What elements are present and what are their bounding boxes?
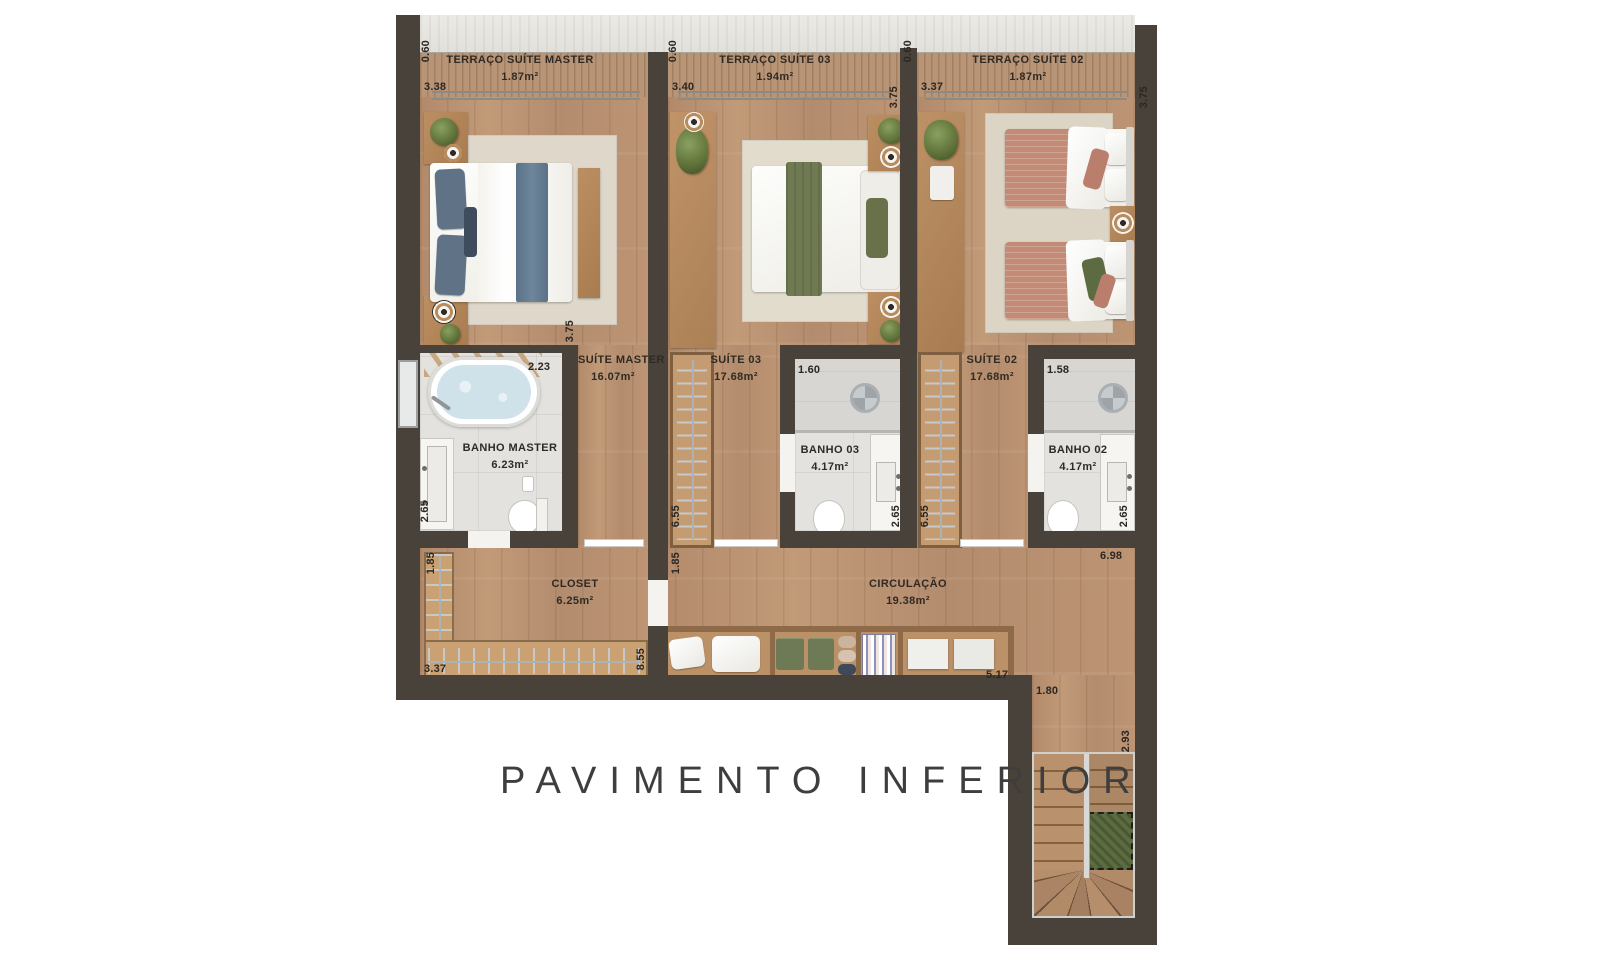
wall-closet-divider-top <box>648 548 668 580</box>
sliding-door-suite-master <box>432 91 640 100</box>
storage-box <box>954 639 994 669</box>
plant-pot <box>880 320 902 342</box>
wall-stair-wing-bottom <box>1008 918 1157 945</box>
folded-blanket-green <box>776 638 804 670</box>
decor-vase <box>930 166 954 200</box>
single-bed-2 <box>1005 242 1134 319</box>
bed-pillow-blue <box>434 234 467 295</box>
wall-divider-master-03 <box>648 52 668 345</box>
room-name: CIRCULAÇÃO <box>858 576 958 593</box>
decor-speaker <box>432 300 456 324</box>
room-area: 1.94m² <box>695 69 855 86</box>
shelf-divider <box>770 632 775 676</box>
stored-pillow <box>668 636 706 670</box>
plant-pot <box>676 128 708 174</box>
dim-stair-opening: 1.80 <box>1036 686 1058 697</box>
roof-ledge-band <box>420 15 1135 52</box>
storage-pouch-navy <box>838 664 856 675</box>
door-leaf-suite-02 <box>960 539 1024 547</box>
room-label-banho-03: BANHO 03 4.17m² <box>798 442 862 476</box>
room-area: 4.17m² <box>1046 459 1110 476</box>
room-name: SUÍTE MASTER <box>578 352 648 369</box>
door-leaf-suite-master <box>584 539 644 547</box>
double-bed-suite-03 <box>752 166 902 292</box>
paper-roll <box>522 476 534 492</box>
door-gap-closet-circulation <box>648 580 668 626</box>
dim-suite-master-corridor: 3.75 <box>565 320 576 342</box>
dim-suite-03-right: 3.75 <box>889 86 900 108</box>
sliding-door-suite-02 <box>925 91 1127 100</box>
bed-headboard <box>1126 240 1134 321</box>
bed-runner-blue <box>516 163 548 302</box>
shelf-divider <box>856 632 861 676</box>
room-label-suite-02: SUÍTE 02 17.68m² <box>956 352 1028 386</box>
plant-pot <box>440 324 460 344</box>
floor-title: PAVIMENTO INFERIOR <box>500 760 1144 803</box>
room-area: 17.68m² <box>956 369 1028 386</box>
shelf-divider <box>898 632 903 676</box>
bed-pillow-blue <box>434 168 467 229</box>
decor-tray <box>444 144 462 162</box>
faucet-dot <box>1127 474 1132 479</box>
floor-plan-canvas: TERRAÇO SUÍTE MASTER 1.87m² TERRAÇO SUÍT… <box>0 0 1600 960</box>
bathtub-water <box>437 365 531 419</box>
wall-right-outer <box>1135 25 1157 945</box>
faucet-dot <box>422 466 427 471</box>
bed-cushion-navy <box>464 207 477 257</box>
storage-box <box>908 639 948 669</box>
room-name: SUÍTE 03 <box>700 352 772 369</box>
bed-headboard <box>1126 127 1134 209</box>
room-area: 1.87m² <box>948 69 1108 86</box>
dim-stair-height: 2.93 <box>1121 730 1132 752</box>
dim-banho-02-right: 2.65 <box>1119 505 1130 527</box>
door-leaf-suite-03 <box>714 539 778 547</box>
folded-towel <box>838 636 856 648</box>
dim-corr-02-height: 6.55 <box>920 505 931 527</box>
room-name: TERRAÇO SUÍTE MASTER <box>440 52 600 69</box>
banho-03-shower-glass <box>795 430 903 433</box>
decor-speaker <box>880 146 902 168</box>
wall-divider-master-03-lower <box>648 345 668 548</box>
wardrobe-rail <box>940 360 942 540</box>
room-area: 1.87m² <box>440 69 600 86</box>
room-area: 6.25m² <box>530 593 620 610</box>
wall-banho-03-top <box>780 345 917 359</box>
single-bed-1 <box>1005 129 1134 207</box>
bed-cover-terracotta <box>1005 129 1073 207</box>
bed-throw-green <box>786 162 822 296</box>
room-name: TERRAÇO SUÍTE 03 <box>695 52 855 69</box>
storage-shelf <box>656 626 1014 682</box>
book-row <box>862 634 896 676</box>
dim-closet-right: 8.55 <box>636 648 647 670</box>
sliding-door-suite-03 <box>678 91 892 100</box>
toilet <box>508 498 546 534</box>
dim-banho-master-width: 2.23 <box>528 362 550 373</box>
dim-closet-top-left: 1.85 <box>426 552 437 574</box>
wall-left-outer <box>396 15 420 700</box>
stair-void-garden <box>1088 812 1133 870</box>
decor-speaker <box>1112 212 1134 234</box>
vanity-sink <box>1107 462 1127 502</box>
room-name: BANHO MASTER <box>455 440 565 457</box>
room-label-suite-master: SUÍTE MASTER 16.07m² <box>578 352 648 386</box>
plant-pot <box>430 118 458 146</box>
faucet-dot <box>1127 486 1132 491</box>
wall-banho-02-top <box>1028 345 1157 359</box>
door-gap-banho-master <box>468 531 510 548</box>
room-label-closet: CLOSET 6.25m² <box>530 576 620 610</box>
stored-pillow <box>712 636 760 672</box>
dim-terrace-02-width: 3.37 <box>921 82 943 93</box>
wall-bottom-main <box>396 675 1032 700</box>
room-label-terraco-03: TERRAÇO SUÍTE 03 1.94m² <box>695 52 855 86</box>
room-name: BANHO 03 <box>798 442 862 459</box>
shower-drain <box>850 383 880 413</box>
room-area: 4.17m² <box>798 459 862 476</box>
window-left <box>398 360 418 428</box>
room-area: 17.68m² <box>700 369 772 386</box>
room-name: CLOSET <box>530 576 620 593</box>
dim-terrace-master-width: 3.38 <box>424 82 446 93</box>
bathtub <box>428 357 540 427</box>
dim-terrace-03-depth: 0.60 <box>668 40 679 62</box>
room-label-terraco-master: TERRAÇO SUÍTE MASTER 1.87m² <box>440 52 600 86</box>
dim-circ-bottom: 5.17 <box>986 670 1008 681</box>
vanity-sink <box>876 462 896 502</box>
wardrobe-rail <box>692 360 694 540</box>
wall-banho-02-bottom <box>1028 531 1157 548</box>
closet-rail <box>439 556 441 644</box>
double-bed-master <box>430 163 572 302</box>
door-gap-banho-02 <box>1028 434 1044 492</box>
banho-02-shower-glass <box>1044 430 1135 433</box>
dim-circ-left: 1.85 <box>671 552 682 574</box>
door-gap-banho-03 <box>780 434 795 492</box>
room-label-banho-02: BANHO 02 4.17m² <box>1046 442 1110 476</box>
room-label-terraco-02: TERRAÇO SUÍTE 02 1.87m² <box>948 52 1108 86</box>
wall-banho-03-bottom <box>780 531 917 548</box>
wall-banho-master-top <box>396 345 578 353</box>
dim-banho-02-width: 1.58 <box>1047 365 1069 376</box>
folded-towel <box>838 650 856 662</box>
folded-blanket-green <box>808 638 834 670</box>
wall-divider-03-02 <box>900 48 917 345</box>
room-name: SUÍTE 02 <box>956 352 1028 369</box>
room-name: BANHO 02 <box>1046 442 1110 459</box>
bed-cover-terracotta <box>1005 242 1073 319</box>
dim-terrace-02-depth: 0.60 <box>903 40 914 62</box>
room-area: 6.23m² <box>455 457 565 474</box>
dim-corr-03-height: 6.55 <box>671 505 682 527</box>
plant-pot <box>924 120 958 160</box>
decor-tray <box>684 112 704 132</box>
bed-lumbar-green <box>866 198 888 258</box>
dim-banho-03-right: 2.65 <box>891 505 902 527</box>
closet-rail <box>428 661 643 663</box>
wall-stair-wing-left <box>1008 675 1032 945</box>
room-area: 16.07m² <box>578 369 648 386</box>
wall-divider-03-02-lower <box>900 345 917 548</box>
dim-terrace-02-right: 3.75 <box>1139 86 1150 108</box>
decor-speaker <box>880 296 902 318</box>
dim-terrace-03-width: 3.40 <box>672 82 694 93</box>
room-name: TERRAÇO SUÍTE 02 <box>948 52 1108 69</box>
room-label-circulacao: CIRCULAÇÃO 19.38m² <box>858 576 958 610</box>
dim-closet-width: 3.37 <box>424 664 446 675</box>
room-label-suite-03: SUÍTE 03 17.68m² <box>700 352 772 386</box>
dim-terrace-master-depth: 0.60 <box>421 40 432 62</box>
dim-circ-right: 6.98 <box>1100 551 1122 562</box>
dim-banho-master-left: 2.65 <box>420 500 431 522</box>
room-area: 19.38m² <box>858 593 958 610</box>
dim-banho-03-width: 1.60 <box>798 365 820 376</box>
shower-drain <box>1098 383 1128 413</box>
room-label-banho-master: BANHO MASTER 6.23m² <box>455 440 565 474</box>
bed-end-bench <box>578 168 600 298</box>
